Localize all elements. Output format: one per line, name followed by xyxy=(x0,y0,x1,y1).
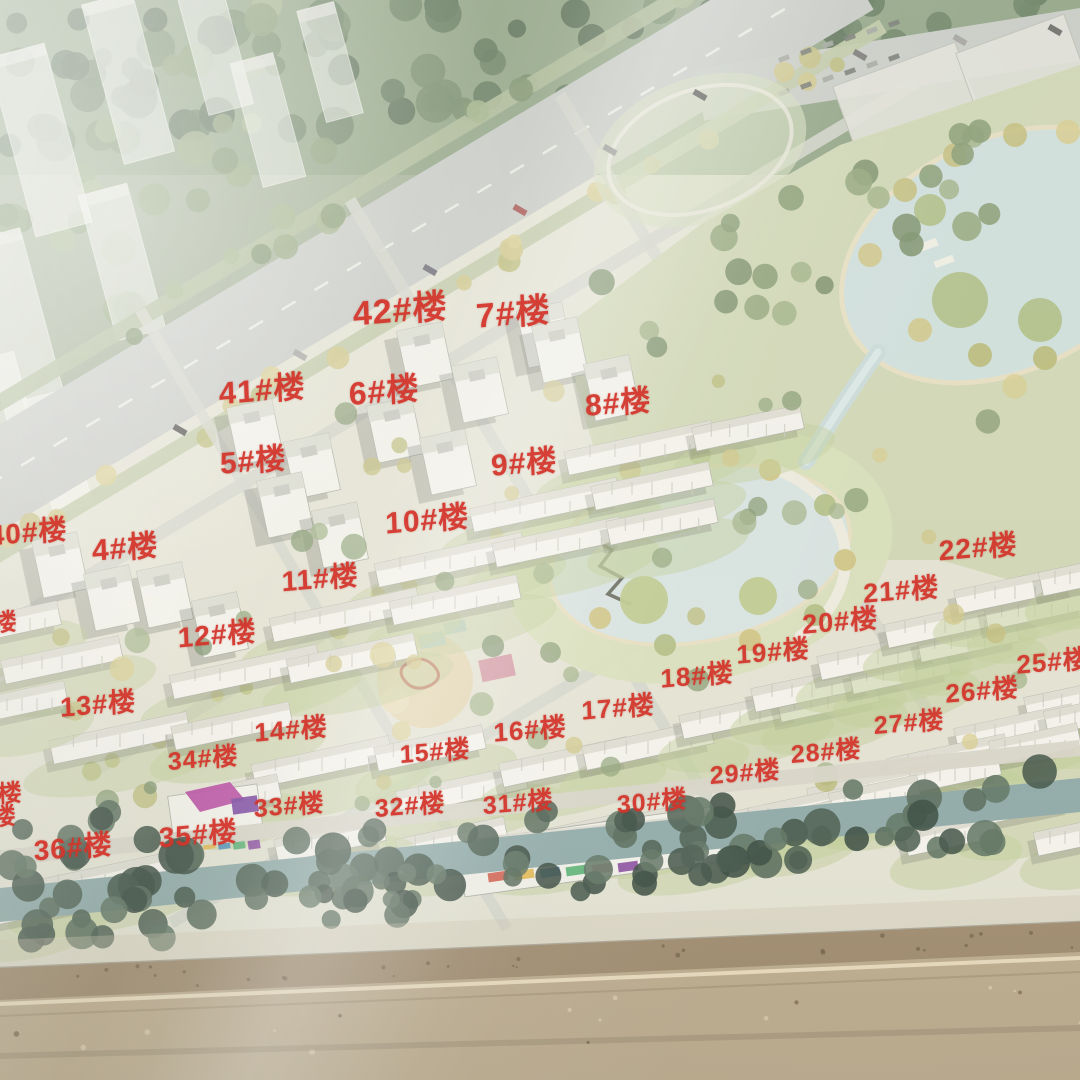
building-label: 20#楼 xyxy=(802,596,879,642)
building-label: 32#楼 xyxy=(375,782,447,824)
building-label: 40#楼 xyxy=(0,508,68,555)
building-label-layer: 42#楼7#楼41#楼6#楼8#楼5#楼9#楼40#楼4#楼10#楼11#楼22… xyxy=(0,0,1080,1080)
building-label: 42#楼 xyxy=(352,278,448,335)
building-label: 29#楼 xyxy=(709,750,781,792)
building-label: 30#楼 xyxy=(616,779,688,821)
building-label: 26#楼 xyxy=(945,667,1019,710)
building-label: 17#楼 xyxy=(581,685,655,728)
building-label: 18#楼 xyxy=(659,652,733,695)
building-label: 16#楼 xyxy=(493,706,567,749)
building-label: 7#楼 xyxy=(475,282,551,338)
building-label: 4#楼 xyxy=(91,520,159,570)
building-label: 10#楼 xyxy=(384,492,469,543)
building-label: 11#楼 xyxy=(281,553,359,600)
building-label: 27#楼 xyxy=(874,700,946,742)
building-label: 31#楼 xyxy=(483,780,555,822)
building-label: 楼 xyxy=(0,601,18,638)
building-label: 22#楼 xyxy=(939,523,1019,570)
building-label: 12#楼 xyxy=(177,609,257,656)
building-label: 25#楼 xyxy=(1016,638,1080,681)
building-label: 19#楼 xyxy=(736,628,810,671)
building-label: 楼 xyxy=(0,796,17,833)
building-label: 41#楼 xyxy=(218,360,306,413)
building-label: 33#楼 xyxy=(254,782,326,824)
building-label: 15#楼 xyxy=(399,728,471,770)
building-label: 14#楼 xyxy=(253,706,327,749)
building-label: 13#楼 xyxy=(60,679,137,725)
building-label: 35#楼 xyxy=(158,809,238,856)
building-label: 34#楼 xyxy=(167,736,239,778)
building-label: 9#楼 xyxy=(490,435,558,485)
building-label: 36#楼 xyxy=(34,822,114,869)
building-label: 5#楼 xyxy=(219,433,287,483)
building-label: 6#楼 xyxy=(348,363,420,415)
site-plan-photo: 42#楼7#楼41#楼6#楼8#楼5#楼9#楼40#楼4#楼10#楼11#楼22… xyxy=(0,0,1080,1080)
building-label: 8#楼 xyxy=(584,375,652,425)
building-label: 28#楼 xyxy=(790,728,862,770)
